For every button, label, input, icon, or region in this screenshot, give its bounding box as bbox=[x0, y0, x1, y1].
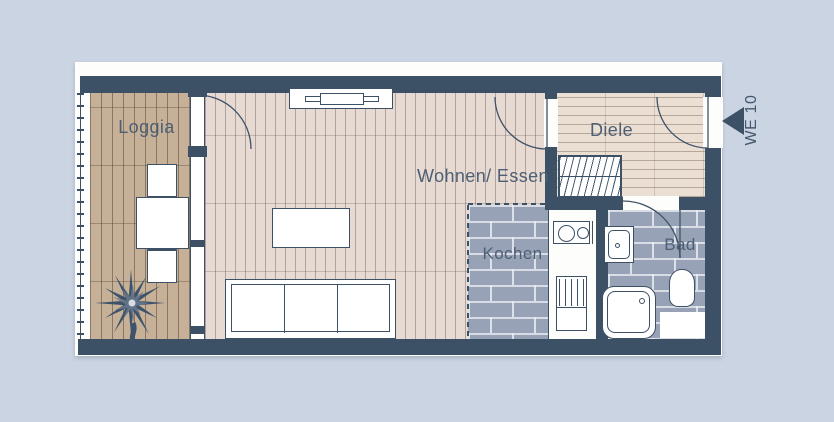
loggia-table bbox=[136, 197, 189, 249]
oven-vents bbox=[559, 279, 584, 306]
kitchen-floor-tiles bbox=[468, 205, 548, 339]
living-diele-door-opening bbox=[544, 99, 558, 147]
wall-diele-bathroom-left bbox=[545, 197, 623, 210]
entrance-arrow-icon bbox=[722, 107, 744, 135]
shower-tray-inner bbox=[607, 291, 650, 333]
loggia-window-strip bbox=[190, 93, 205, 339]
sofa-cushion-divider-1 bbox=[284, 285, 285, 333]
oven-divider bbox=[557, 307, 586, 308]
tv-screen bbox=[320, 93, 364, 105]
kitchen-boundary-dashed-left bbox=[467, 205, 469, 339]
sofa bbox=[225, 279, 396, 339]
loggia-window-post-top bbox=[188, 86, 207, 97]
toilet bbox=[669, 269, 695, 307]
washbasin bbox=[604, 226, 634, 263]
kitchen-boundary-dashed-top bbox=[468, 203, 548, 205]
sideboard bbox=[289, 88, 393, 109]
floorplan-page: Loggia Wohnen/ Essen Kochen Diele Bad WE… bbox=[0, 0, 834, 422]
balcony-railing-line bbox=[80, 93, 81, 339]
oven-unit bbox=[556, 276, 587, 331]
entrance-door-opening bbox=[703, 97, 723, 148]
dining-table bbox=[272, 208, 350, 248]
wardrobe-rod bbox=[560, 176, 620, 177]
wall-diele-bathroom-right bbox=[679, 197, 705, 210]
plant-icon bbox=[92, 265, 172, 347]
unit-label: WE 10 bbox=[743, 84, 763, 156]
bottom-wall bbox=[78, 339, 721, 355]
washbasin-drain bbox=[615, 243, 620, 248]
shower-tray bbox=[602, 286, 656, 339]
bathroom-door-opening bbox=[623, 196, 679, 210]
kitchen-faucet-line bbox=[592, 221, 593, 244]
washer-space bbox=[660, 312, 705, 338]
top-wall bbox=[80, 76, 721, 93]
loggia-chair-top bbox=[147, 164, 177, 198]
kitchen-sink bbox=[553, 221, 590, 244]
sink-basin-large bbox=[558, 225, 575, 242]
wardrobe bbox=[558, 155, 622, 198]
sofa-cushion-divider-2 bbox=[337, 285, 338, 333]
loggia-window-post-mid bbox=[188, 146, 207, 157]
loggia-window-mullion-2 bbox=[190, 326, 205, 334]
shower-drain bbox=[639, 298, 645, 304]
sink-basin-small bbox=[577, 227, 589, 239]
sofa-cushions bbox=[231, 284, 390, 332]
loggia-window-mullion-1 bbox=[190, 240, 205, 247]
